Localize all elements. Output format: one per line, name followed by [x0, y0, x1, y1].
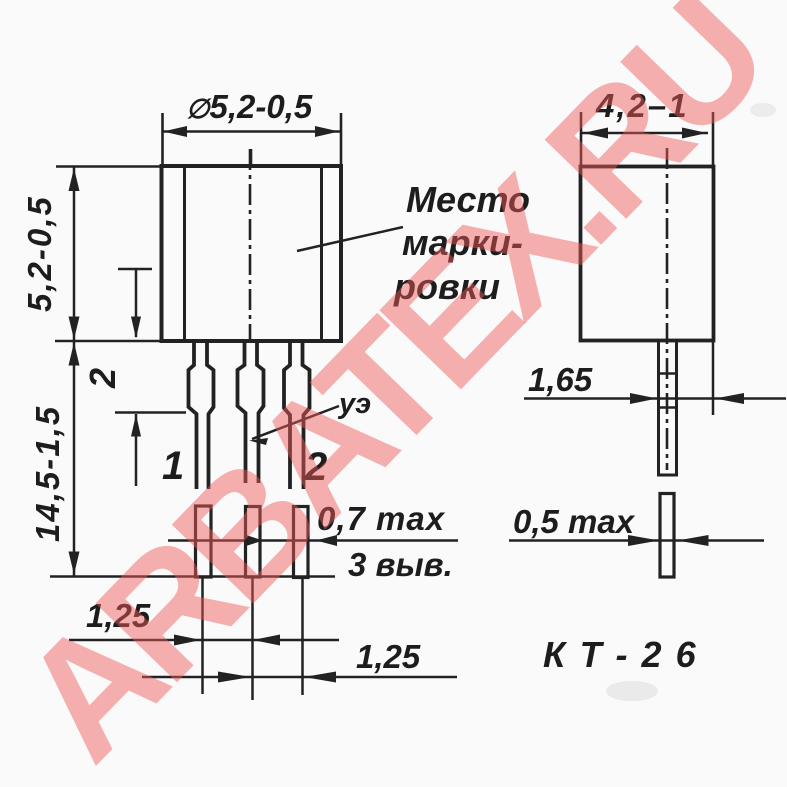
svg-text:14,5-1,5: 14,5-1,5	[29, 405, 66, 542]
svg-text:∅5,2-0,5: ∅5,2-0,5	[186, 88, 313, 125]
svg-text:1,25: 1,25	[356, 638, 421, 675]
svg-text:1,65: 1,65	[528, 361, 593, 398]
svg-text:КТ-26: КТ-26	[543, 634, 710, 675]
svg-text:2: 2	[82, 368, 123, 389]
svg-text:5,2-0,5: 5,2-0,5	[21, 195, 58, 312]
svg-text:3 выв.: 3 выв.	[348, 546, 453, 583]
svg-text:0,5 max: 0,5 max	[513, 503, 636, 540]
